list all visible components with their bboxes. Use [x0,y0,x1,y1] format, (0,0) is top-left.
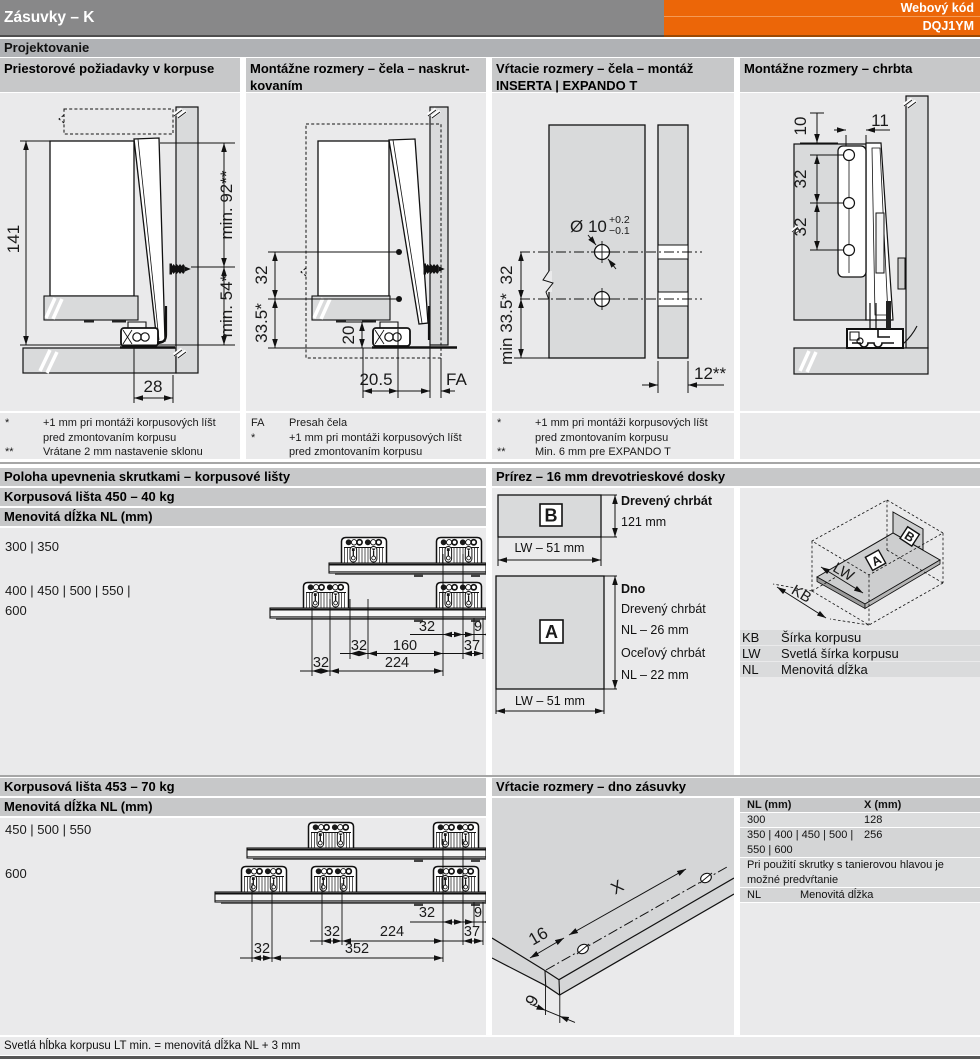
svg-text:B: B [545,506,558,526]
svg-text:37: 37 [464,924,480,940]
svg-text:min 33.5*: min 33.5* [497,293,516,365]
svg-text:32: 32 [419,619,435,635]
svg-text:32: 32 [313,655,329,671]
svg-text:12**: 12** [694,364,727,383]
svg-text:33.5*: 33.5* [252,303,271,343]
svg-text:20.5: 20.5 [359,370,392,389]
svg-text:28: 28 [144,377,163,396]
svg-text:32: 32 [791,170,810,189]
svg-text:11: 11 [871,111,889,130]
svg-text:20: 20 [339,326,358,345]
svg-text:−0.1: −0.1 [609,225,630,237]
svg-text:32: 32 [324,924,340,940]
svg-text:min. 92**: min. 92** [217,170,236,239]
svg-text:10: 10 [791,117,810,136]
svg-text:Ø 10: Ø 10 [570,217,607,236]
svg-text:9: 9 [474,619,482,635]
svg-text:32: 32 [252,266,271,285]
svg-text:9: 9 [474,905,482,921]
svg-text:352: 352 [345,941,369,957]
svg-text:32: 32 [254,941,270,957]
svg-text:32: 32 [497,266,516,285]
svg-text:32: 32 [351,638,367,654]
svg-text:32: 32 [419,905,435,921]
svg-text:9: 9 [522,992,543,1009]
svg-text:160: 160 [393,638,417,654]
svg-text:224: 224 [385,655,409,671]
svg-text:min. 54*: min. 54* [217,274,236,337]
svg-text:KB: KB [788,582,814,607]
svg-text:37: 37 [464,638,480,654]
svg-text:141: 141 [4,225,23,253]
svg-text:32: 32 [791,218,810,237]
svg-text:224: 224 [380,924,404,940]
svg-text:FA: FA [446,370,467,389]
svg-text:A: A [545,622,558,642]
